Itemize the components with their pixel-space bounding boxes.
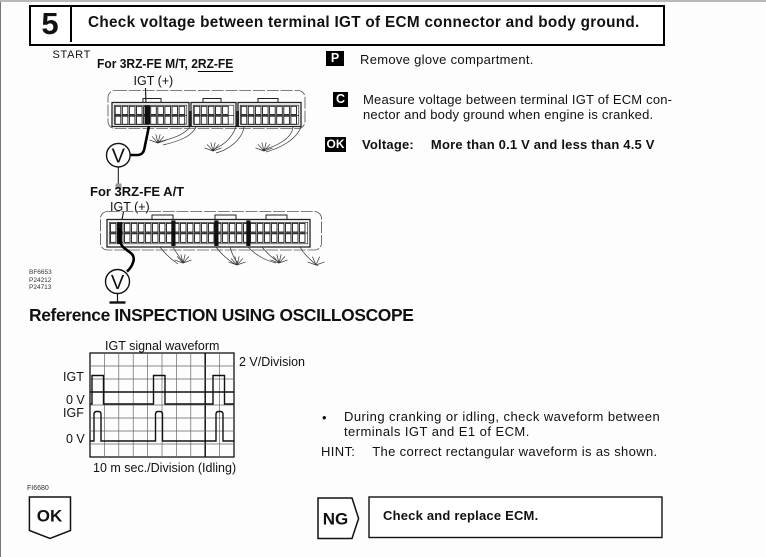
svg-text:Check and replace ECM.: Check and replace ECM. [383,508,538,523]
svg-text:V: V [112,146,126,168]
svg-text:NG: NG [323,510,349,529]
svg-text:OK: OK [37,507,63,526]
svg-text:V: V [111,272,125,294]
